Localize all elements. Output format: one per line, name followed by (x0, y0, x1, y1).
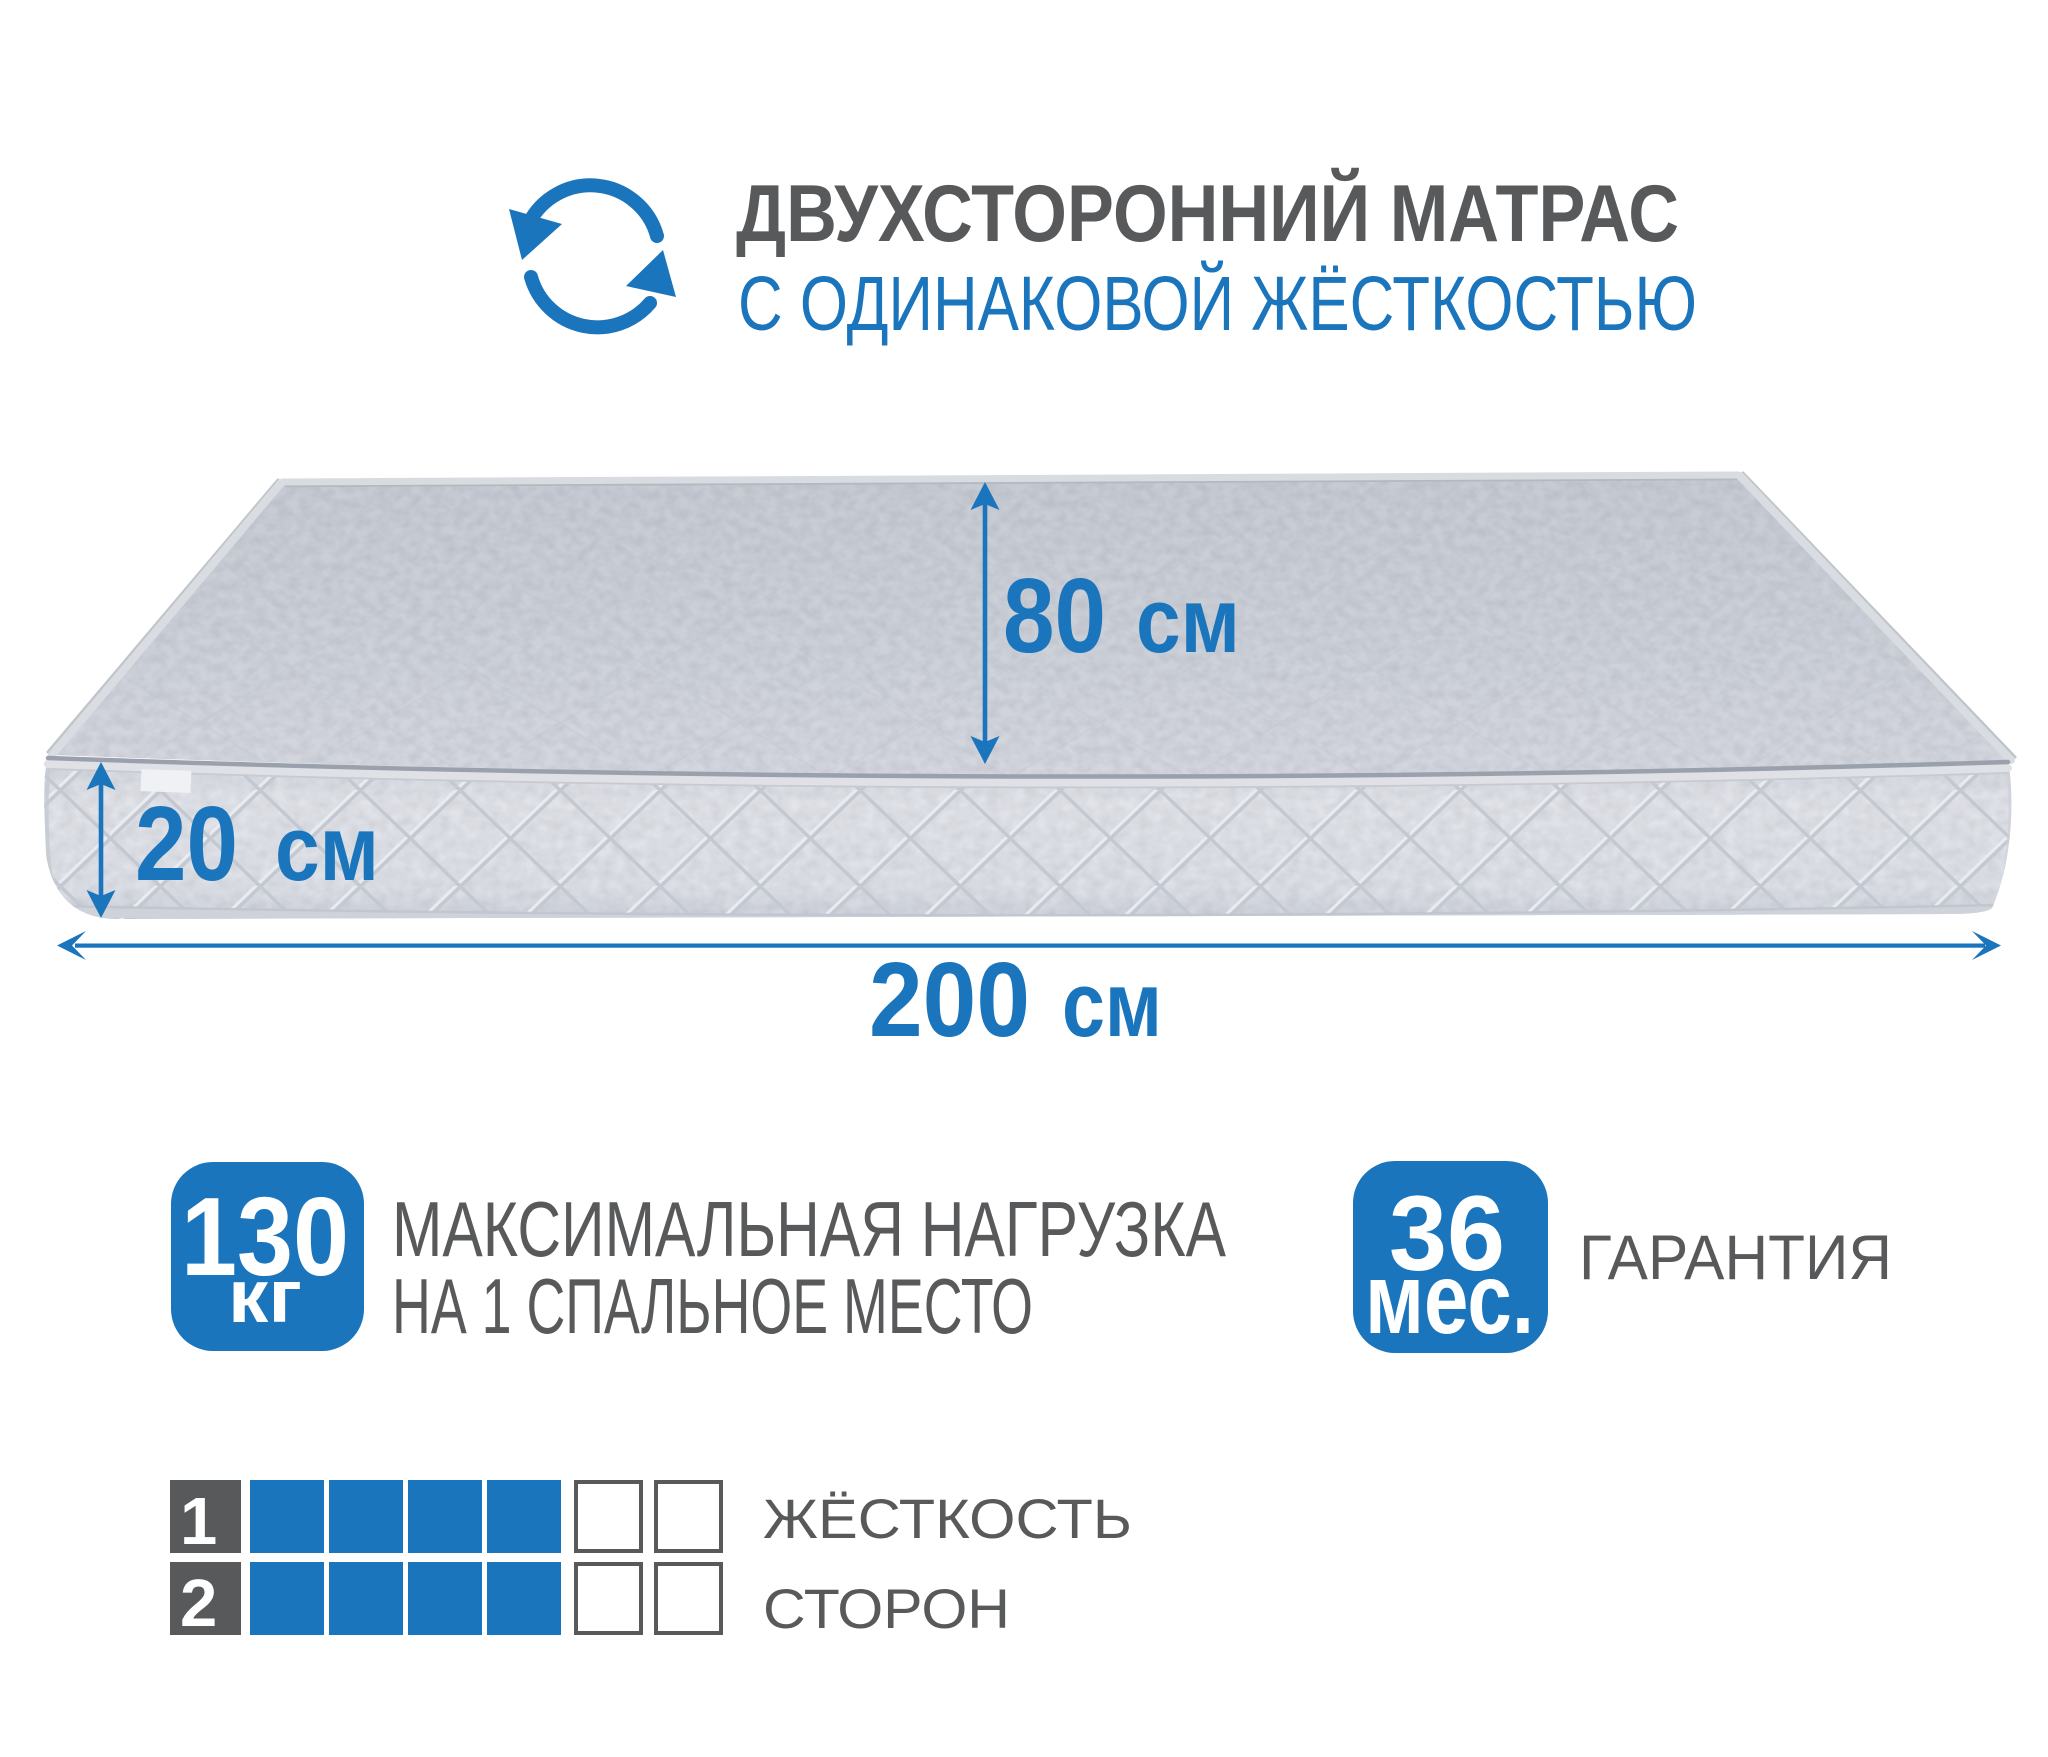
svg-text:ДВУХСТОРОННИЙ МАТРАС: ДВУХСТОРОННИЙ МАТРАС (736, 167, 1679, 259)
svg-text:см: см (1136, 570, 1240, 672)
svg-text:2: 2 (180, 1566, 217, 1641)
svg-text:см: см (1062, 954, 1162, 1056)
svg-text:С ОДИНАКОВОЙ ЖЁСТКОСТЬЮ: С ОДИНАКОВОЙ ЖЁСТКОСТЬЮ (738, 260, 1697, 347)
svg-text:см: см (275, 798, 379, 900)
svg-text:НА 1 СПАЛЬНОЕ МЕСТО: НА 1 СПАЛЬНОЕ МЕСТО (392, 1262, 1033, 1350)
svg-text:1: 1 (180, 1484, 217, 1559)
svg-text:ГАРАНТИЯ: ГАРАНТИЯ (1579, 1223, 1892, 1293)
svg-text:20: 20 (135, 785, 238, 903)
svg-text:СТОРОН: СТОРОН (763, 1577, 1010, 1640)
svg-text:мес.: мес. (1365, 1243, 1534, 1355)
svg-text:МАКСИМАЛЬНАЯ НАГРУЗКА: МАКСИМАЛЬНАЯ НАГРУЗКА (392, 1185, 1226, 1273)
svg-text:кг: кг (228, 1254, 302, 1338)
svg-text:200: 200 (869, 941, 1030, 1059)
svg-text:ЖЁСТКОСТЬ: ЖЁСТКОСТЬ (763, 1487, 1132, 1550)
svg-text:80: 80 (1003, 557, 1106, 675)
